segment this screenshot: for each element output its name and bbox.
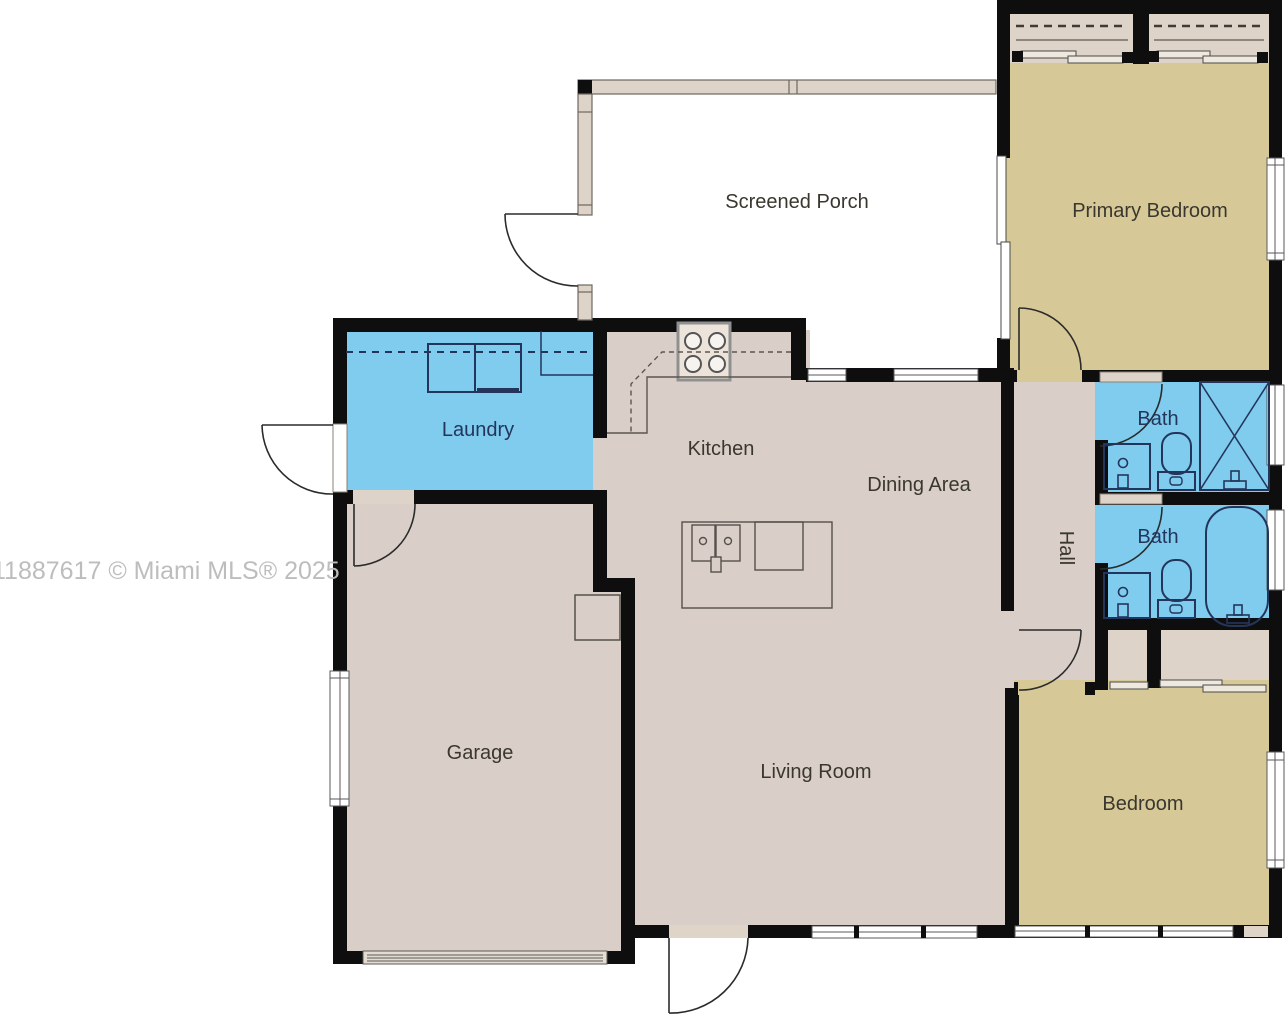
door-front-entry (669, 938, 748, 1013)
window-dining-2 (894, 369, 978, 381)
door-laundry-exterior (262, 424, 347, 494)
wall-segment (1233, 925, 1244, 938)
door-arc (262, 425, 333, 494)
room-label-primary-bedroom: Primary Bedroom (1072, 200, 1228, 222)
garage-door (363, 951, 607, 964)
window-mullion (921, 926, 926, 938)
room-garage-floor (338, 495, 630, 957)
room-label-screened-porch: Screened Porch (725, 191, 868, 213)
wall-segment (997, 0, 1010, 158)
window-bath-lower-right (1267, 510, 1284, 590)
stove-burner-icon (685, 356, 701, 372)
door-leaf-open (1100, 494, 1162, 504)
door-porch-exterior (505, 214, 578, 286)
window-mullion (854, 926, 859, 938)
sliding-door-panel (1203, 685, 1266, 692)
front-door-threshold (669, 925, 748, 938)
room-label-bath-upper: Bath (1137, 408, 1178, 430)
wall-segment (333, 318, 806, 332)
laundry-garage-opening (353, 490, 414, 504)
door-arc (669, 938, 748, 1013)
wall-segment (1147, 630, 1161, 688)
stove-icon (678, 323, 730, 380)
window-dining-1 (808, 369, 846, 381)
room-label-kitchen: Kitchen (688, 438, 755, 460)
wall-segment (791, 318, 806, 380)
sliding-door-panel (1157, 51, 1210, 58)
window-bedroom-bottom (1015, 926, 1233, 937)
bath-lower-door-opening (1095, 505, 1108, 563)
room-label-dining-area: Dining Area (867, 474, 971, 496)
room-label-bath-lower: Bath (1137, 526, 1178, 548)
bath-upper-door-opening (1095, 382, 1108, 440)
wall-segment (593, 318, 607, 438)
sliding-door-panel (1001, 242, 1010, 339)
floorplan-svg: Screened Porch Primary Bedroom Laundry K… (0, 0, 1286, 1018)
sliding-door-panel (1203, 56, 1258, 63)
window-living-bottom (812, 926, 977, 938)
door-arc (505, 214, 578, 286)
sliding-door-panel (1068, 56, 1123, 63)
wall-segment (1133, 14, 1149, 64)
wall-segment (1005, 682, 1019, 938)
slider-end-post (1012, 51, 1023, 62)
window-mullion (1158, 926, 1163, 937)
sliding-door-panel (1110, 682, 1148, 689)
window-mullion (1085, 926, 1090, 937)
stove-burner-icon (709, 333, 725, 349)
slider-end-post (1257, 52, 1268, 63)
room-living-dining-floor (805, 375, 1014, 930)
window-garage-left (330, 671, 349, 806)
island-counter (682, 522, 832, 608)
hall-entrance-opening (1001, 611, 1014, 688)
room-hall-floor (1007, 375, 1102, 690)
wall-segment (593, 490, 607, 588)
sliding-door-panel (997, 156, 1006, 244)
faucet-icon (711, 557, 721, 572)
wall-segment (1001, 377, 1014, 611)
wall-segment (333, 318, 347, 964)
room-label-hall: Hall (1055, 531, 1077, 565)
porch-corner-post (578, 80, 592, 95)
laundry-kitchen-opening (593, 438, 607, 490)
room-label-living-room: Living Room (760, 761, 871, 783)
mls-watermark: 11887617 © Miami MLS® 2025 (0, 557, 340, 585)
floorplan-image: Screened Porch Primary Bedroom Laundry K… (0, 0, 1286, 1018)
stove-burner-icon (709, 356, 725, 372)
water-heater-icon (575, 595, 620, 640)
room-label-bedroom: Bedroom (1102, 793, 1183, 815)
room-laundry-floor (338, 325, 600, 497)
stove-burner-icon (685, 333, 701, 349)
door-opening (333, 424, 347, 492)
room-label-garage: Garage (447, 742, 514, 764)
wall-segment (1085, 682, 1095, 695)
bedroom-door-opening (1018, 682, 1085, 695)
slider-end-post (1122, 52, 1134, 63)
door-leaf-open (1100, 372, 1162, 382)
kitchen-island (682, 522, 832, 608)
wall-segment (621, 578, 635, 964)
window-primary-right (1267, 158, 1284, 260)
porch-screen-wall-top (578, 80, 996, 94)
primary-bedroom-door-opening (1017, 370, 1082, 382)
rear-threshold (1244, 926, 1268, 937)
porch-screen-wall-left-lower (578, 285, 592, 320)
window-bedroom-right (1267, 752, 1284, 868)
room-label-laundry: Laundry (442, 419, 514, 441)
bedroom-closet-floor (1100, 622, 1270, 688)
wall-segment (997, 0, 1282, 14)
slider-end-post (1148, 51, 1159, 62)
